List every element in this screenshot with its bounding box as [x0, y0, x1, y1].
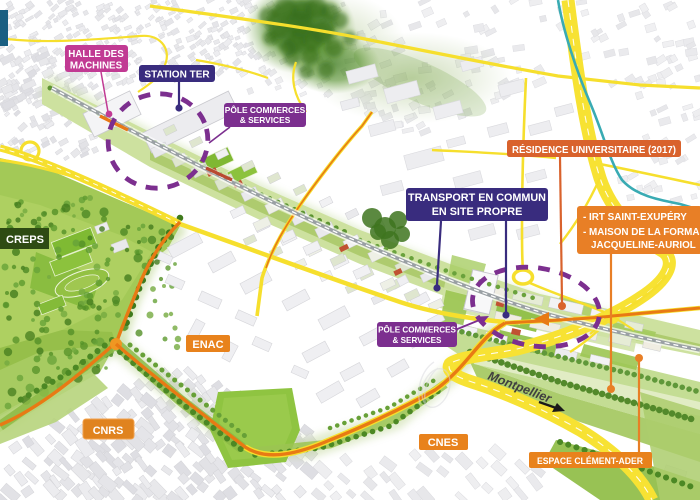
svg-text:ENAC: ENAC — [192, 339, 223, 351]
svg-text:CNRS: CNRS — [93, 425, 124, 437]
svg-text:HALLE DES: HALLE DES — [68, 49, 124, 60]
svg-text:EN SITE PROPRE: EN SITE PROPRE — [432, 206, 523, 218]
svg-text:STATION TER: STATION TER — [144, 70, 210, 81]
svg-text:PÔLE COMMERCES: PÔLE COMMERCES — [225, 104, 306, 115]
svg-text:& SERVICES: & SERVICES — [240, 115, 291, 125]
svg-text:- MAISON DE LA FORMA: - MAISON DE LA FORMA — [583, 227, 699, 238]
svg-text:CNES: CNES — [428, 437, 459, 449]
svg-text:ESPACE CLÉMENT-ADER: ESPACE CLÉMENT-ADER — [537, 455, 643, 467]
svg-text:JACQUELINE-AURIOL: JACQUELINE-AURIOL — [591, 240, 696, 251]
svg-text:RÉSIDENCE UNIVERSITAIRE (2017): RÉSIDENCE UNIVERSITAIRE (2017) — [512, 143, 676, 156]
svg-text:- IRT SAINT-EXUPÉRY: - IRT SAINT-EXUPÉRY — [583, 212, 687, 223]
svg-text:PÔLE COMMERCES: PÔLE COMMERCES — [378, 326, 456, 335]
svg-text:& SERVICES: & SERVICES — [393, 336, 442, 345]
svg-text:TRANSPORT EN COMMUN: TRANSPORT EN COMMUN — [408, 192, 546, 204]
svg-text:MACHINES: MACHINES — [70, 61, 123, 72]
svg-text:CREPS: CREPS — [6, 234, 44, 246]
